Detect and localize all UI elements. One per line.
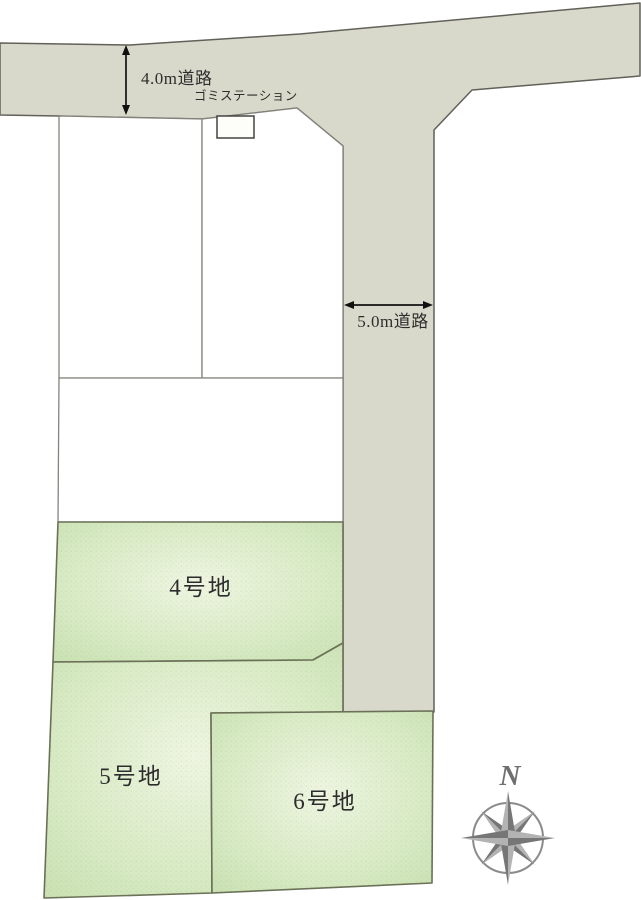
road-4m-label: 4.0m道路 xyxy=(141,70,212,89)
lot-4-label: 4号地 xyxy=(136,575,266,600)
white-lot-middle xyxy=(58,378,343,522)
compass-north-label: N xyxy=(480,761,540,793)
lot-6-label: 6号地 xyxy=(260,789,390,814)
compass-rose-icon xyxy=(454,784,561,891)
lot-5-label: 5号地 xyxy=(66,764,196,789)
white-lot-right xyxy=(202,108,343,378)
lot-layout-plan: 4.0m道路 ゴミステーション 5.0m道路 4号地 5号地 6号地 N xyxy=(0,0,641,900)
garbage-station-box xyxy=(217,116,254,138)
garbage-station-label: ゴミステーション xyxy=(194,90,298,104)
white-lot-left xyxy=(59,116,202,378)
road-5m-label: 5.0m道路 xyxy=(353,313,433,332)
